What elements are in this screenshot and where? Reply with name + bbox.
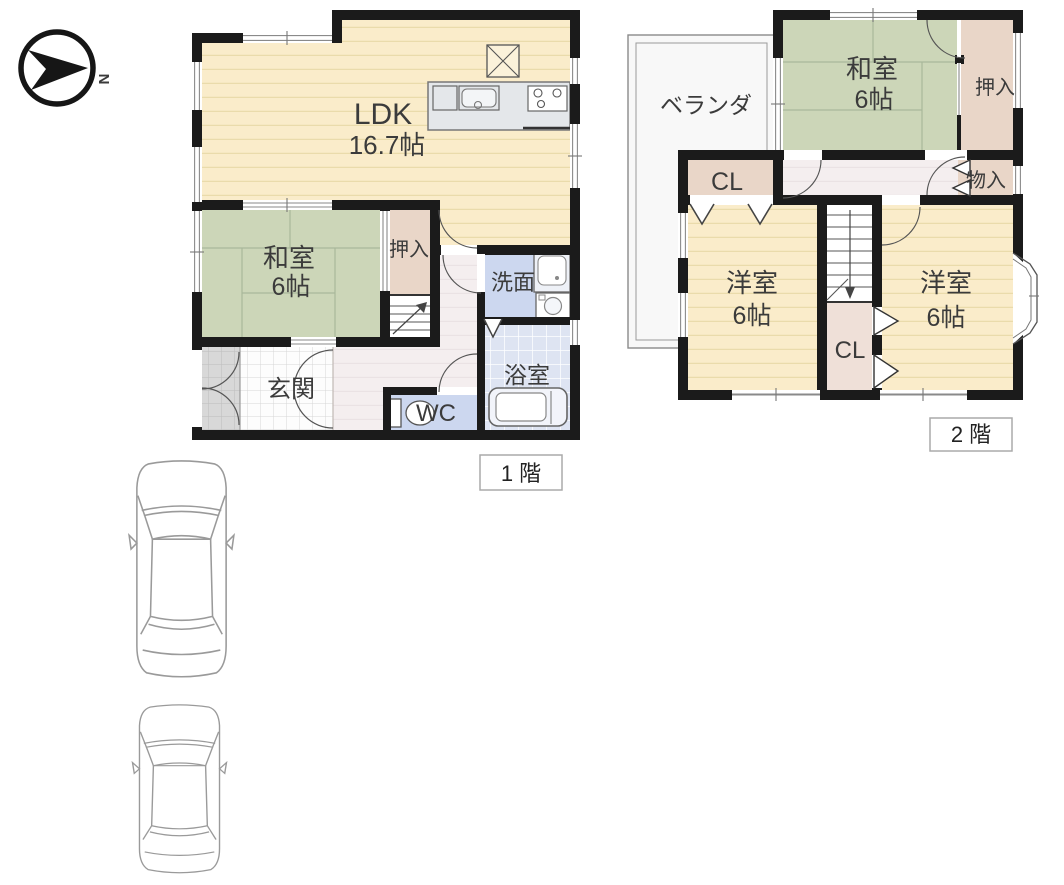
monoire-label: 物入 [966, 169, 1006, 192]
sliding-door [957, 63, 961, 115]
wc-label: WC [416, 400, 456, 427]
yoshitsu-left-area-label: 6帖 [733, 302, 772, 330]
veranda-label: ベランダ [660, 92, 752, 118]
floor1-hallway-3 [333, 347, 383, 430]
bathroom-label: 浴室 [504, 362, 550, 388]
floor1-hallway-2 [383, 347, 477, 389]
floor1-label-box: 1 階 [480, 455, 562, 490]
sliding-door [243, 198, 332, 212]
window [678, 213, 688, 258]
oshiire1-label: 押入 [389, 238, 429, 261]
washitsu2-door-opening [925, 150, 967, 160]
washitsu2-label: 和室 [846, 54, 898, 84]
kitchen-sink [462, 89, 496, 107]
yoshitsu-left-label: 洋室 [726, 268, 778, 298]
hall-door-opening [784, 150, 822, 160]
bay-window [1013, 253, 1039, 344]
ldk-area-label: 16.7帖 [349, 130, 426, 160]
senmen-sink [534, 252, 570, 292]
floorplan-svg: N [0, 0, 1064, 885]
floor1-floor-label: 1 階 [501, 461, 541, 486]
ldk-label: LDK [354, 98, 412, 131]
oshiire2-label: 押入 [975, 76, 1015, 99]
window [771, 58, 785, 150]
window [570, 320, 580, 345]
window [1013, 166, 1023, 194]
ldk-door-opening [441, 245, 477, 255]
senmen-door-opening [477, 254, 485, 292]
floor1-porch [202, 347, 240, 433]
window [190, 211, 204, 292]
sliding-door [291, 337, 336, 347]
senmen-label: 洗面 [491, 270, 535, 295]
floor1-plan: LDK 16.7帖 和室 6帖 押入 洗面 浴室 WC 玄関 [190, 10, 582, 440]
window [192, 62, 202, 110]
closet-hall-opening [690, 195, 773, 205]
window [568, 124, 582, 188]
entrance-opening [192, 350, 202, 427]
floorplan-canvas: N [0, 0, 1064, 885]
window [243, 31, 332, 45]
floor2-washitsu-room [780, 17, 960, 153]
closet-hall-label: CL [711, 168, 743, 196]
closet-center-label: CL [835, 337, 866, 364]
car-2 [133, 705, 227, 873]
compass: N [21, 32, 112, 104]
wc-door-opening [437, 387, 477, 395]
window [192, 147, 202, 202]
compass-north-label: N [95, 74, 112, 85]
car-1 [129, 461, 234, 677]
yoshitsu-right-area-label: 6帖 [927, 304, 966, 332]
window [830, 8, 917, 22]
stove [528, 86, 567, 111]
washitsu1-area-label: 6帖 [272, 273, 311, 301]
washing-machine [536, 293, 570, 319]
yoshitsu-right-label: 洋室 [920, 268, 972, 298]
genkan-label: 玄関 [267, 376, 315, 403]
window [678, 293, 688, 337]
yoshitsu-right-door-opening [882, 195, 920, 205]
floor2-label-box: 2 階 [930, 418, 1012, 451]
oshiire2-door-opening [957, 20, 961, 58]
washitsu1-label: 和室 [263, 243, 315, 273]
washitsu2-area-label: 6帖 [855, 86, 894, 114]
floor2-floor-label: 2 階 [951, 422, 991, 447]
floor2-plan: ベランダ 和室 6帖 押入 物入 CL CL 洋室 6帖 洋室 6帖 [628, 8, 1039, 401]
bathtub [489, 388, 567, 426]
window [570, 58, 580, 84]
